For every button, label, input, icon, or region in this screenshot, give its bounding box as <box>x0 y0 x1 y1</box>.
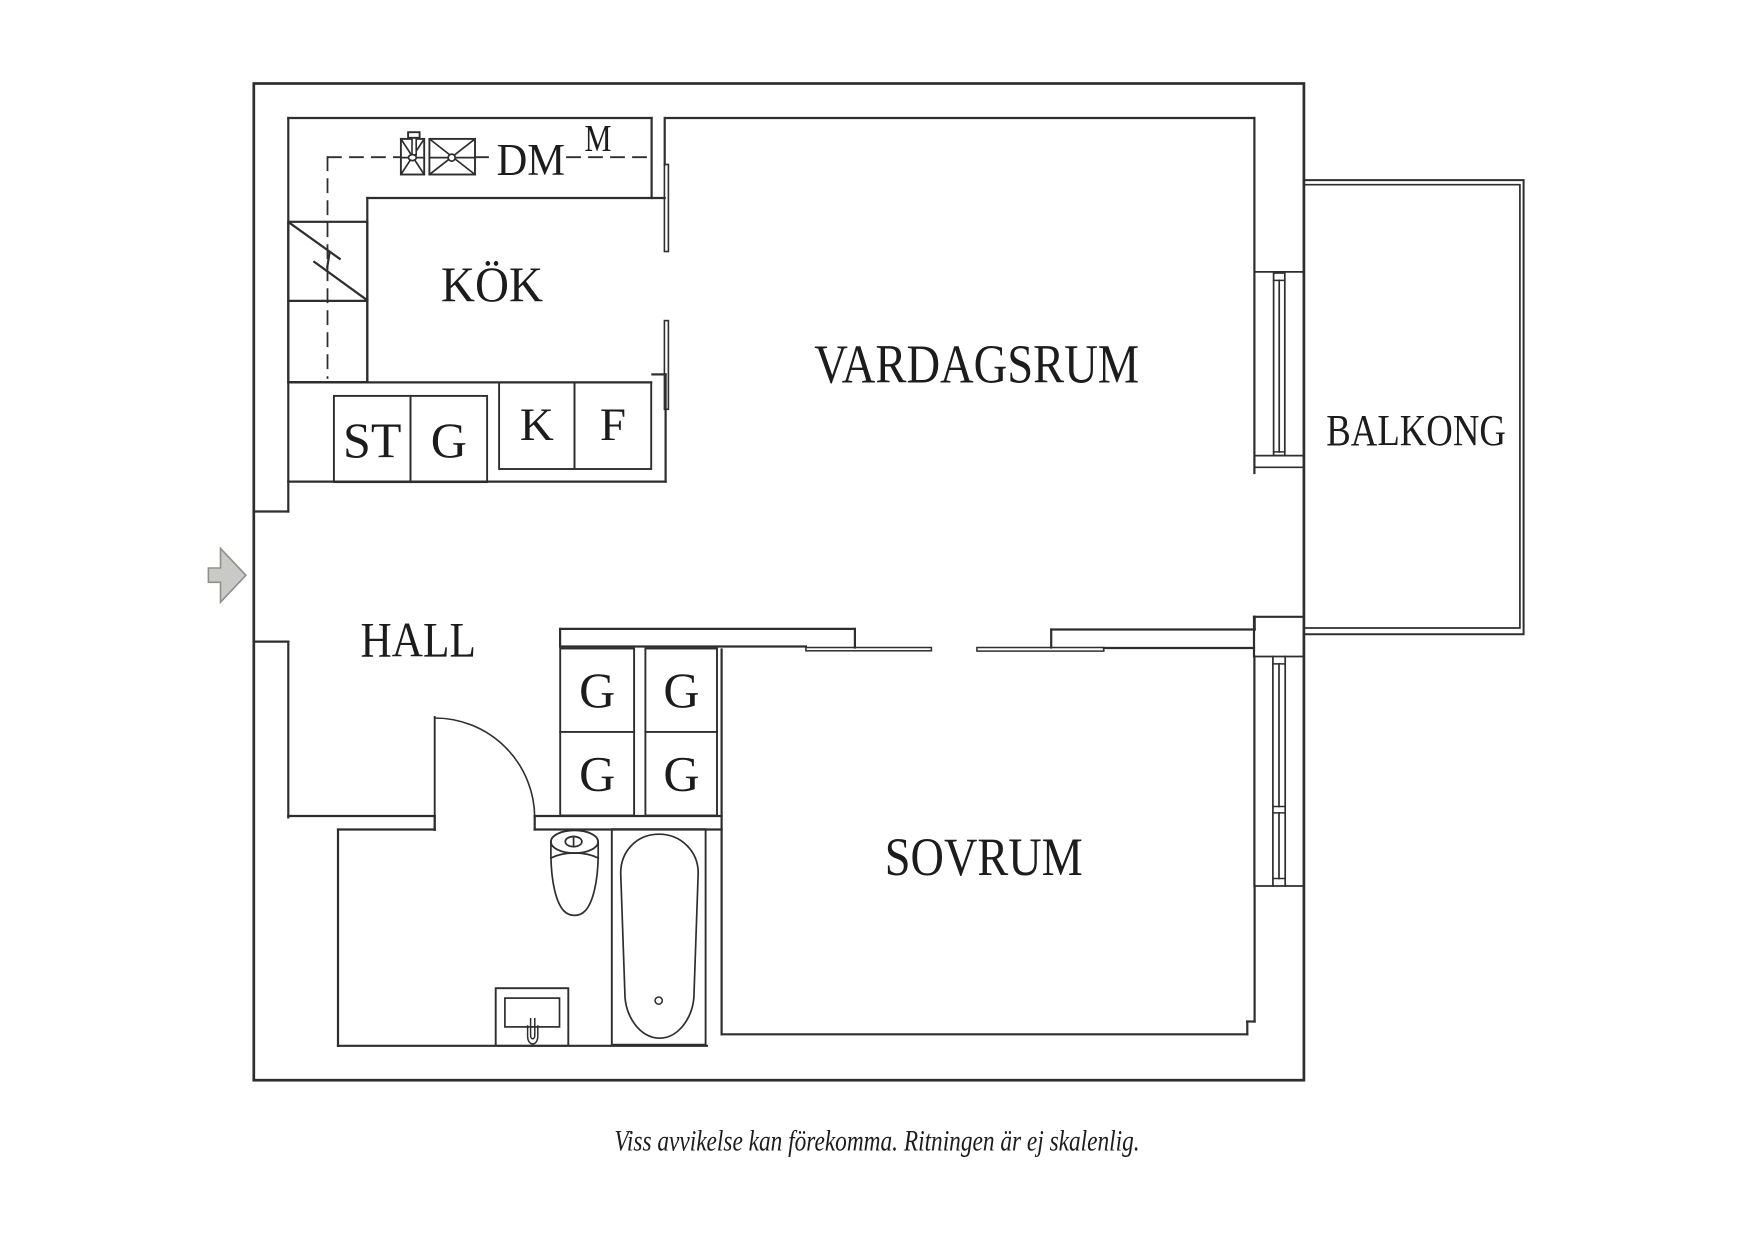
svg-text:G: G <box>431 412 467 468</box>
svg-text:K: K <box>520 399 554 451</box>
svg-text:DM: DM <box>497 135 565 185</box>
svg-text:F: F <box>600 399 626 451</box>
svg-text:KÖK: KÖK <box>441 256 543 312</box>
svg-text:Viss avvikelse kan förekomma.: Viss avvikelse kan förekomma. Ritningen … <box>614 1124 1139 1157</box>
svg-text:G: G <box>579 662 615 718</box>
svg-text:G: G <box>663 746 699 802</box>
svg-text:ST: ST <box>343 412 401 468</box>
svg-text:VARDAGSRUM: VARDAGSRUM <box>814 334 1139 395</box>
svg-text:HALL: HALL <box>361 612 476 668</box>
svg-text:M: M <box>585 118 612 160</box>
svg-text:G: G <box>663 662 699 718</box>
svg-text:G: G <box>579 746 615 802</box>
svg-text:BALKONG: BALKONG <box>1326 406 1506 455</box>
svg-text:SOVRUM: SOVRUM <box>885 827 1083 887</box>
